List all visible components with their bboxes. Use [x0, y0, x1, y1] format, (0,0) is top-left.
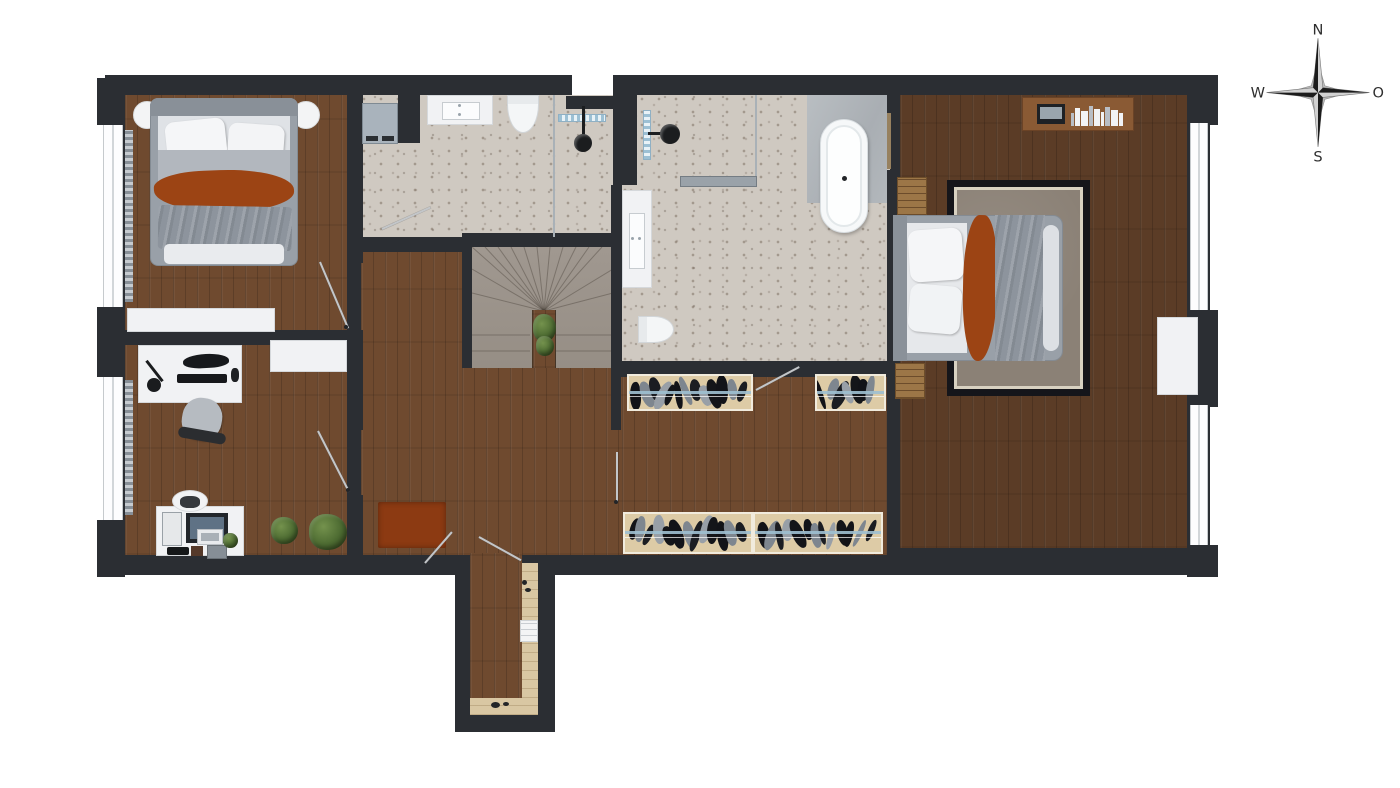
desk-chair-secondary: [172, 490, 208, 512]
wall-stairs-top: [462, 233, 630, 247]
extension-drawers: [520, 620, 538, 642]
compass-label-south: S: [1313, 149, 1322, 166]
compass-east-dark: [1318, 88, 1369, 93]
console-shelf: [1022, 97, 1134, 131]
compass-south-dark: [1318, 93, 1323, 147]
counter-decor: [503, 702, 509, 706]
book-spine: [1071, 113, 1074, 126]
door-leaf-dressing-hall: [616, 452, 618, 502]
book-spine: [1089, 106, 1093, 126]
plant-desk: [223, 533, 238, 548]
laptop-icon: [197, 529, 223, 545]
floor-corridor-extension: [470, 553, 522, 715]
wall-bedroom-right-lower: [347, 330, 363, 430]
hanging-clothes: [716, 375, 728, 404]
bed-sheet: [1043, 225, 1059, 351]
window-master-right-top: [1190, 123, 1208, 310]
wall-pier-left-bottom: [97, 520, 125, 577]
wall-bath1-bath2-divider: [613, 75, 637, 185]
wardrobe-bottom-left: [623, 512, 753, 554]
window-master-right-bottom: [1190, 405, 1208, 545]
washing-machine: [362, 103, 398, 144]
shower-bench-bath2: [680, 176, 757, 187]
wall-notch: [572, 75, 614, 96]
door-hinge-dot: [614, 500, 618, 504]
faucet-dot: [458, 104, 461, 107]
bed-guest: [150, 98, 298, 266]
shower-glass-bath2: [755, 95, 757, 185]
desk-keyboard: [177, 374, 227, 383]
wall-bath1-bottom-right: [435, 237, 462, 252]
desk-item-gray: [207, 545, 227, 559]
wood-mat-bottom: [895, 363, 925, 399]
wall-master-left-upper: [887, 75, 900, 113]
tablet-icon: [162, 512, 182, 546]
desk-item-box: [191, 546, 203, 556]
tv-screen: [1040, 107, 1062, 119]
vanity-bath1: [427, 95, 493, 125]
compass-west-dark: [1267, 93, 1318, 98]
bed-master: [893, 215, 1063, 361]
bed-blanket: [995, 215, 1045, 361]
toilet-tank: [639, 317, 647, 342]
floor-hallway-bottom: [462, 368, 622, 555]
shower-glass-bath1: [553, 95, 555, 237]
window-bedroom-left: [103, 125, 123, 307]
wood-mat-top: [897, 177, 927, 216]
bathtub: [820, 119, 868, 233]
counter-decor: [491, 702, 500, 708]
vanity-bath2: [622, 190, 652, 288]
hanging-clothes: [865, 374, 877, 404]
washer-slot: [366, 136, 378, 141]
door-leaf-master: [887, 113, 891, 169]
hanging-clothes: [825, 522, 837, 550]
dresser-master: [1157, 317, 1198, 395]
door-hinge-dot: [346, 488, 350, 492]
book-spine: [1111, 110, 1118, 126]
wall-office-right-lower: [347, 495, 363, 555]
shower-head-bath1: [574, 134, 592, 152]
wall-pier-left-top: [97, 78, 125, 125]
plant-office-large: [309, 514, 347, 550]
window-office-left: [103, 377, 123, 520]
book-spine: [1075, 108, 1080, 126]
bathtub-drain: [842, 176, 847, 181]
rug-hallway-red: [378, 502, 446, 548]
plant-stairwell-lower: [536, 336, 554, 356]
counter-decor: [525, 588, 531, 592]
wall-pier-right-bottom: [1187, 545, 1218, 577]
desk-speaker: [183, 353, 230, 369]
console-books: [1071, 104, 1129, 126]
sideboard-bedroom: [127, 308, 275, 332]
bed-headboard: [150, 98, 298, 116]
door-hinge-dot: [344, 325, 348, 329]
wall-bath1-bottom-left: [347, 237, 378, 252]
desk-secondary: [156, 506, 244, 556]
radiator-bedroom: [125, 130, 133, 302]
wall-stairs-right: [611, 185, 621, 430]
wardrobe-bottom-right: [753, 512, 883, 554]
compass-rose: N W O S: [1250, 24, 1386, 166]
desk-mouse: [231, 368, 239, 382]
toilet-tank: [508, 96, 538, 104]
shower-drain-bath2: [643, 110, 651, 160]
book-spine: [1119, 113, 1123, 126]
radiator-office: [125, 380, 133, 515]
wardrobe-top-left: [627, 374, 753, 411]
plant-office-small: [271, 517, 298, 544]
hanging-clothes: [706, 517, 718, 544]
wall-stairs-left: [462, 247, 472, 368]
faucet-dot: [638, 237, 641, 240]
wardrobe-top-right: [815, 374, 886, 411]
washer-slot: [382, 136, 394, 141]
sink-basin: [629, 213, 645, 269]
bed-headboard: [893, 215, 907, 361]
desk-main: [138, 345, 242, 403]
hanging-clothes: [735, 381, 748, 403]
compass-label-east: O: [1372, 84, 1383, 101]
bed-pillow: [907, 283, 963, 335]
book-spine: [1101, 112, 1104, 126]
book-spine: [1081, 111, 1088, 126]
book-spine: [1105, 107, 1110, 126]
faucet-dot: [631, 237, 634, 240]
laptop-keys: [201, 533, 219, 541]
compass-label-north: N: [1313, 24, 1324, 38]
wall-bedroom-right-upper: [347, 75, 363, 263]
shower-head-bath2: [660, 124, 680, 144]
desk-lamp-icon: [147, 378, 161, 392]
bed-pillow: [907, 227, 964, 283]
tv-icon: [1037, 104, 1065, 124]
wall-notch-tab: [566, 96, 618, 109]
compass-label-west: W: [1251, 84, 1265, 101]
counter-decor: [522, 580, 527, 585]
desk-chair-seat: [180, 496, 200, 508]
office-chair: [178, 396, 226, 446]
compass-north-dark: [1313, 38, 1318, 92]
extension-counter-bottom: [470, 698, 538, 715]
bed-sheet: [164, 244, 284, 264]
book-spine: [1094, 109, 1100, 126]
sink-basin: [442, 102, 480, 120]
wall-pier-right-top: [1183, 75, 1218, 125]
floor-plan: N W O S: [0, 0, 1400, 788]
faucet-dot: [458, 113, 461, 116]
wall-washer-nook: [398, 95, 420, 143]
sideboard-office: [270, 340, 347, 372]
desk-item-bar: [167, 547, 189, 555]
